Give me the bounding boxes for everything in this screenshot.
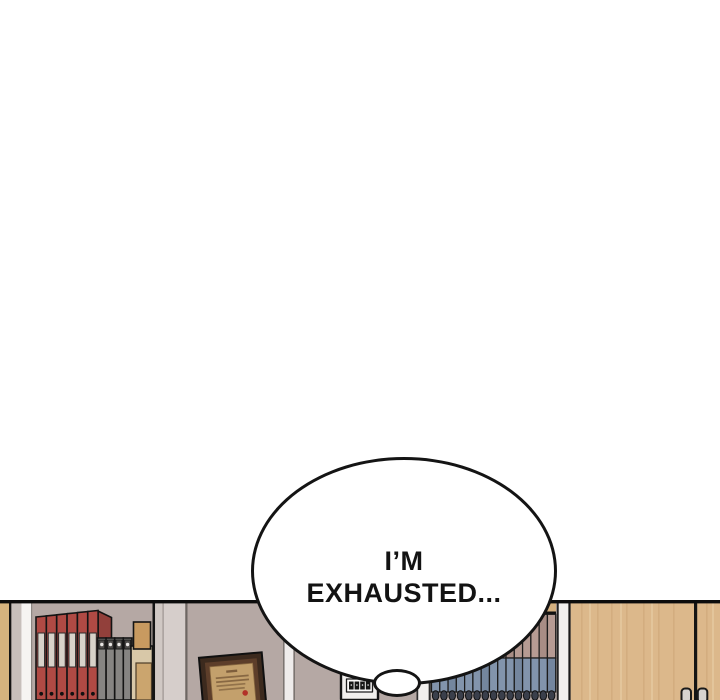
binder-books	[98, 638, 132, 700]
speech-bubble-tail	[373, 669, 421, 697]
speech-line-2: EXHAUSTED...	[306, 578, 501, 610]
wooden-cabinet	[571, 600, 720, 700]
tan-books	[131, 622, 153, 700]
speech-bubble-text: I’M EXHAUSTED...	[306, 546, 501, 610]
red-book-spines	[36, 611, 98, 700]
webtoon-page: I’M EXHAUSTED...	[0, 0, 720, 700]
bookshelf-left-edge-trim	[153, 600, 188, 700]
framed-certificate	[199, 652, 267, 700]
bookshelf-left-side	[0, 600, 32, 700]
speech-bubble: I’M EXHAUSTED...	[251, 457, 557, 685]
speech-line-1: I’M	[306, 546, 501, 578]
cabinet-door-divider	[694, 600, 697, 700]
